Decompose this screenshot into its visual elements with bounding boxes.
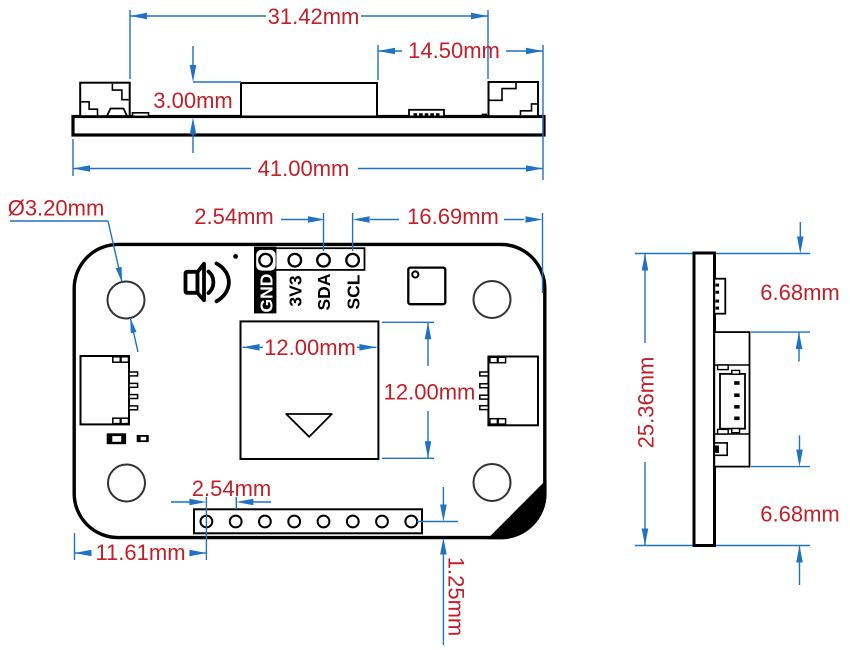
svg-text:6.68mm: 6.68mm	[760, 280, 839, 305]
svg-text:12.00mm: 12.00mm	[384, 380, 476, 405]
svg-text:3V3: 3V3	[286, 275, 306, 306]
svg-text:SCL: SCL	[343, 274, 363, 309]
svg-text:12.00mm: 12.00mm	[264, 335, 356, 360]
svg-text:3.00mm: 3.00mm	[153, 88, 232, 113]
svg-text:1.25mm: 1.25mm	[443, 557, 468, 636]
svg-text:6.68mm: 6.68mm	[760, 502, 839, 527]
svg-text:14.50mm: 14.50mm	[408, 38, 500, 63]
svg-text:Ø3.20mm: Ø3.20mm	[8, 196, 105, 221]
svg-text:11.61mm: 11.61mm	[95, 540, 185, 565]
svg-text:2.54mm: 2.54mm	[194, 204, 273, 229]
svg-text:2.54mm: 2.54mm	[192, 476, 271, 501]
svg-text:16.69mm: 16.69mm	[407, 204, 499, 229]
svg-text:25.36mm: 25.36mm	[634, 357, 659, 449]
svg-text:31.42mm: 31.42mm	[268, 4, 360, 29]
svg-text:41.00mm: 41.00mm	[258, 156, 350, 181]
svg-text:SDA: SDA	[314, 273, 334, 310]
svg-text:GND: GND	[256, 274, 276, 313]
